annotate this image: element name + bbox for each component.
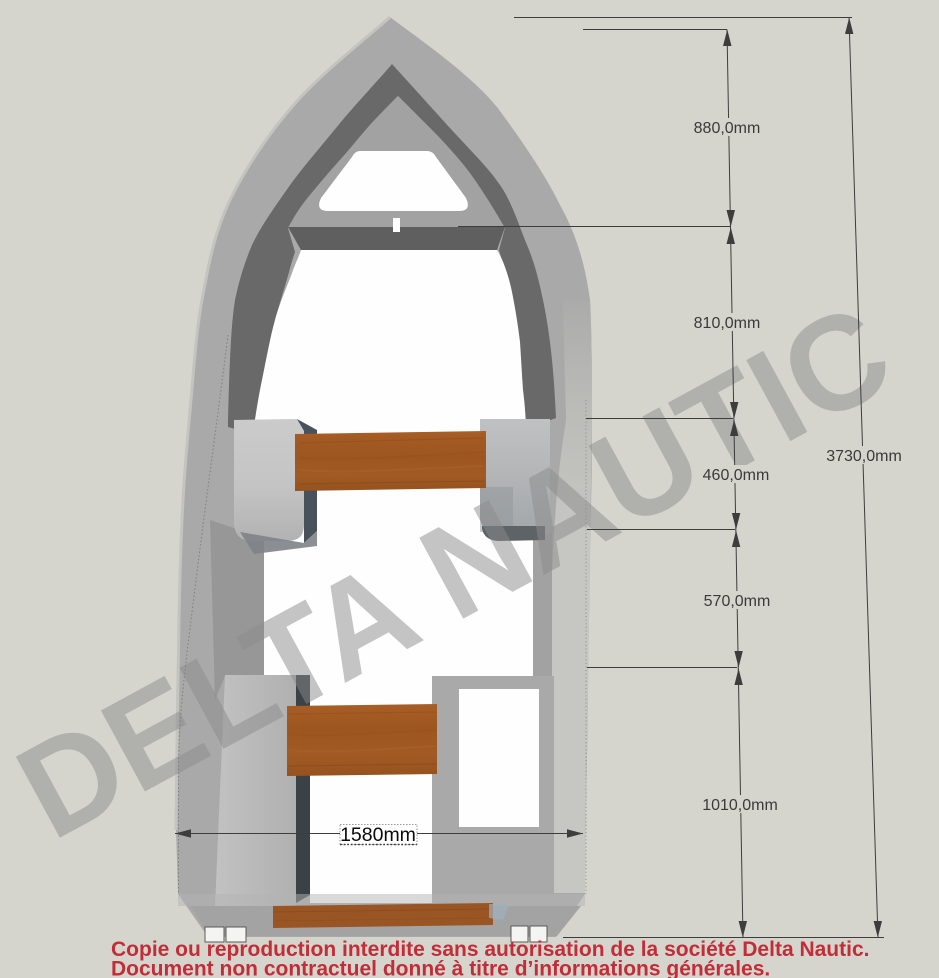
svg-text:Document non contractuel donné: Document non contractuel donné à titre d… xyxy=(111,958,770,978)
svg-text:570,0mm: 570,0mm xyxy=(704,593,771,610)
svg-text:1010,0mm: 1010,0mm xyxy=(702,797,778,814)
svg-text:1580mm: 1580mm xyxy=(340,824,416,846)
svg-text:460,0mm: 460,0mm xyxy=(703,467,770,484)
svg-text:3730,0mm: 3730,0mm xyxy=(826,448,902,465)
svg-text:880,0mm: 880,0mm xyxy=(694,120,761,137)
svg-text:810,0mm: 810,0mm xyxy=(694,315,761,332)
